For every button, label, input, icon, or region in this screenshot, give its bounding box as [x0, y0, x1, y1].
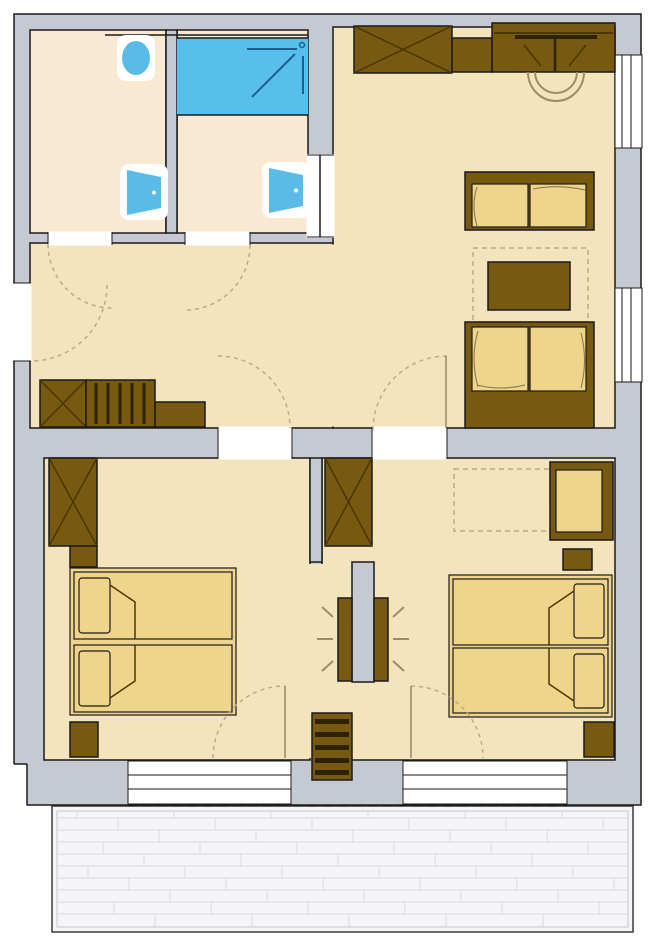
entrance-opening — [12, 283, 32, 361]
coffee-table — [488, 262, 570, 310]
bedroom-divider-wall-lower — [352, 562, 374, 682]
shaft-box — [40, 380, 86, 427]
pillow — [79, 651, 110, 706]
desk — [550, 462, 613, 540]
wash-basin-wc — [120, 164, 168, 220]
sofa-top — [465, 172, 594, 230]
terrace-glazing-left — [128, 761, 291, 804]
pillow — [574, 654, 604, 708]
terrace-glazing-right — [403, 761, 567, 804]
staircase-small — [312, 713, 352, 780]
toilet — [117, 35, 155, 81]
window-right-upper — [615, 55, 642, 148]
bedroom-divider-wall-upper — [310, 458, 322, 562]
pillow — [574, 584, 604, 638]
outside-notch — [11, 764, 27, 807]
bedroom-right-door-opening — [372, 427, 447, 460]
sofa-bottom — [465, 322, 594, 428]
nightstand — [70, 546, 97, 567]
wc-door-opening — [48, 232, 112, 246]
nightstand — [584, 722, 614, 757]
double-bed-left — [70, 568, 236, 715]
double-bed-right — [449, 575, 612, 717]
wardrobe-bedroom-right — [325, 458, 372, 546]
nightstand — [70, 722, 98, 757]
window-right-lower — [615, 288, 642, 382]
bath-living-door — [307, 154, 335, 238]
floor-plan-page — [0, 0, 659, 940]
counter-connector — [452, 38, 492, 72]
nightstand — [563, 549, 592, 570]
terrace — [52, 806, 633, 932]
entrance-door — [12, 283, 32, 361]
terrace-deck — [52, 806, 633, 932]
open-seam — [330, 245, 338, 427]
bathtub — [177, 38, 308, 115]
pillow — [79, 578, 110, 633]
wardrobe-bedroom-left — [49, 458, 97, 546]
floor-plan — [0, 0, 659, 940]
stair-landing — [155, 402, 205, 427]
bedroom-left-door-opening — [218, 427, 292, 460]
bath-door-opening — [185, 232, 250, 246]
wardrobe-living — [354, 26, 452, 73]
wash-basin-bath — [262, 162, 310, 218]
